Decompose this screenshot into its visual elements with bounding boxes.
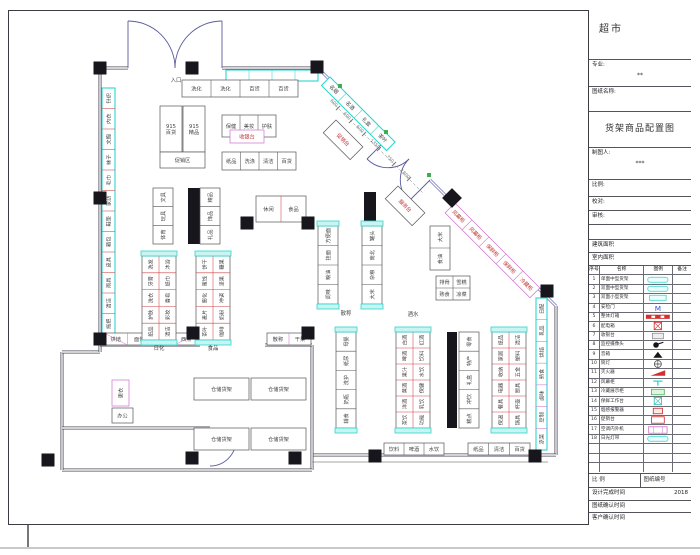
legend-name: 监控摄像头 — [600, 341, 645, 349]
major-value: ** — [592, 72, 688, 80]
legend-header-1: 名称 — [600, 266, 645, 274]
legend-sym — [644, 379, 673, 387]
legend-sym — [644, 425, 673, 433]
shelf-label: 精品 — [189, 128, 199, 136]
shelf-label: 洗衣 — [146, 293, 154, 303]
legend-row: 6配电箱 — [589, 322, 691, 331]
legend-sym — [644, 369, 673, 377]
legend-symbol-xbox-cyan — [645, 397, 671, 405]
shelf-label: 百货 — [282, 157, 292, 165]
black-strip — [364, 192, 376, 222]
scale-row: 比例: — [589, 180, 691, 197]
legend-no: 2 — [589, 285, 600, 293]
shelf-label: 饰品 — [206, 211, 214, 221]
plan-text: 散称 — [341, 309, 352, 317]
shelf-run: 排骨雪糕熟食凉菜 — [436, 276, 470, 300]
shelf-label: 洗护 — [342, 375, 350, 385]
footer-row1: 比 例 图纸编号 — [589, 474, 691, 488]
column — [529, 450, 542, 463]
legend-no: 3 — [589, 294, 600, 302]
legend-note — [673, 341, 691, 349]
shelf-label: 茶饮 — [400, 414, 408, 425]
legend-row: 4安检门M — [589, 304, 691, 313]
legend-row — [589, 444, 691, 453]
shelf-label: 收纳 — [496, 367, 504, 377]
shelf-run: 饼干糖果蜜饯坚果膨化冲调麦片奶粉茶叶咖啡 — [195, 251, 231, 345]
column — [289, 452, 302, 465]
legend-symbol-rect-red-sm — [645, 407, 671, 415]
shelf-label: 护肤 — [146, 309, 154, 320]
shelf-run: 915精品 — [183, 106, 205, 152]
column — [186, 62, 199, 75]
shelf-label: 电器 — [496, 382, 504, 393]
shelf-label: 纸尿 — [342, 356, 350, 366]
shelf-run: 母婴纸尿洗护奶瓶辅食 — [335, 327, 357, 433]
legend-no: 5 — [589, 313, 600, 321]
legend-no — [589, 444, 600, 452]
shelf-label: 百货 — [249, 84, 259, 92]
shelf-label: 凉菜 — [537, 434, 545, 444]
legend-note — [673, 463, 691, 472]
legend-no: 9 — [589, 350, 600, 358]
legend-note — [673, 285, 691, 293]
legend-row: 3双面小型货架 — [589, 294, 691, 303]
legend-header-0: 序号 — [589, 266, 600, 274]
drafter-label: 制图人: — [592, 150, 610, 156]
legend-no: 4 — [589, 304, 600, 312]
shelf-label: 仓储货架 — [211, 385, 232, 393]
drawing-confirm-label: 图纸确认时间 — [592, 503, 625, 509]
legend-sym — [644, 435, 673, 443]
legend-symbol-tri-black — [645, 350, 671, 358]
shelf-label: 红酒 — [417, 335, 425, 345]
shelf-label: 文具 — [159, 192, 167, 202]
shelf-label: 休闲 — [263, 205, 273, 213]
shelf-label: 纸品 — [473, 445, 483, 453]
shelf-label: 毛巾 — [104, 175, 112, 185]
shelf-label: 白酒 — [400, 335, 408, 345]
door-marker — [384, 130, 388, 134]
shelf-label: 母婴 — [343, 336, 350, 346]
legend-row: 13冷藏展示柜 — [589, 388, 691, 397]
shelf-label: 杂粮 — [368, 270, 376, 280]
shelf-run: 精品饰品礼品 — [200, 188, 220, 244]
shelf-label: 鞋垫 — [104, 215, 112, 226]
shelf-label: 美妆 — [244, 122, 254, 130]
drawing-name-label: 图纸名称: — [592, 89, 616, 95]
shelf-run: 915百货 — [160, 106, 182, 152]
shelf-label: 牙膏 — [146, 276, 154, 286]
legend-sym: M — [644, 304, 673, 312]
legend-symbol-bar-red — [645, 313, 671, 321]
drafter-value: *** — [592, 160, 688, 168]
column — [541, 285, 554, 298]
shelf-label: 清洁 — [263, 157, 273, 165]
legend-symbol-rect-red — [645, 416, 671, 424]
shelf-label: 洋酒 — [400, 399, 408, 409]
shelf-label: 文胸 — [104, 134, 112, 144]
shelf-label: 保健 — [226, 122, 236, 130]
shelf-label: 糖果 — [217, 259, 225, 269]
shelf-label: 家居 — [496, 351, 504, 361]
legend-symbol-flag-red — [645, 369, 671, 377]
legend-symbol-pill-cyan — [645, 435, 671, 443]
shelf-label: 雨具 — [105, 278, 112, 288]
shelf-label: 乳品 — [537, 325, 545, 335]
shelf-run: 仓储货架 — [251, 428, 306, 450]
shelf-label: 糕点 — [465, 413, 473, 423]
shelf-run: 纸品洗涤清洁百货 — [222, 152, 296, 170]
shelf-label: 礼品 — [206, 229, 214, 239]
shelf-run: 洗发沐浴牙膏纸巾洗衣香皂护肤彩妆纸品清洁 — [141, 251, 177, 345]
legend-no: 11 — [589, 369, 600, 377]
shelf-label: 礼盒 — [465, 374, 473, 385]
legend-sym — [644, 322, 673, 330]
shelf-label: 啤酒 — [409, 445, 419, 453]
shelf-label: 洗化 — [220, 84, 230, 92]
shelf-run: 洗化洗化百货百货 — [182, 80, 298, 97]
shelf-label: 百货 — [514, 445, 524, 453]
shelf-run: 文具玩具体育 — [153, 188, 173, 244]
design-time-label: 设计完成时间 — [592, 490, 625, 498]
footer-row2: 设计完成时间 2018 — [589, 488, 691, 501]
legend-sym — [644, 313, 673, 321]
shelf-label: 纸巾 — [163, 276, 171, 286]
shelf-run: 仓储货架 — [251, 378, 306, 400]
legend-row: 1单面中型货架 — [589, 275, 691, 284]
legend-note — [673, 350, 691, 358]
legend-note — [673, 388, 691, 396]
shelf-label: 麦片 — [200, 310, 208, 320]
legend-name: 灭火器 — [600, 369, 645, 377]
black-strip — [188, 188, 200, 244]
legend-name: 双面中型货架 — [600, 285, 645, 293]
legend-name: 音箱 — [600, 350, 645, 358]
column — [241, 217, 254, 230]
shelf-label: 调味 — [324, 289, 332, 299]
legend-sym — [644, 360, 673, 368]
legend-row: 9音箱 — [589, 350, 691, 359]
legend-note — [673, 313, 691, 321]
legend-row: 18日光灯带 — [589, 435, 691, 444]
shelf-label: 功能 — [417, 415, 425, 425]
shelf-label: 百货 — [278, 84, 288, 92]
shelf-label: 五金 — [513, 366, 521, 377]
drawing-sheet: 洗化洗化百货百货针织内衣文胸袜子毛巾家纺鞋垫箱包皮具雨具清洁拖把日配乳品烘焙熟食… — [0, 0, 700, 555]
legend-name — [600, 454, 645, 462]
legend-row: 15烟感报警器 — [589, 407, 691, 416]
legend-note — [673, 454, 691, 462]
shelf-run: 零食特产礼盒冲饮糕点 — [459, 332, 479, 428]
shelf-label: 餐具 — [496, 399, 504, 409]
shelf-label: 大米 — [368, 288, 376, 299]
shelf-label: 散称 — [273, 335, 283, 343]
legend-no — [589, 454, 600, 462]
legend-no — [589, 463, 600, 472]
shelf-label: 卤味 — [537, 391, 545, 401]
legend-no: 17 — [589, 425, 600, 433]
legend-note — [673, 294, 691, 302]
legend-symbol-cam-black — [645, 341, 671, 349]
legend-note — [673, 397, 691, 405]
legend-no: 7 — [589, 332, 600, 340]
legend-row — [589, 463, 691, 472]
shelf-label: 仓储货架 — [268, 435, 289, 443]
shelf-label: 保健 — [417, 383, 425, 393]
shelf-label: 水饮 — [429, 445, 440, 453]
audit-label: 审核: — [592, 213, 605, 219]
shelf-label: 沐浴 — [163, 258, 171, 269]
shelf-label: 日配 — [538, 303, 545, 314]
drawing-title: 货架商品配置图 — [589, 112, 691, 148]
shelf-label: 纸品 — [226, 157, 236, 165]
shelf-label: 食品 — [288, 205, 298, 213]
shelf-label: 仓储货架 — [211, 435, 232, 443]
shelf-run: 饮料啤酒水饮 — [384, 443, 444, 455]
shelf-label: 清洁 — [513, 335, 521, 345]
legend-name: 单面中型货架 — [600, 275, 645, 283]
plan-text: 食品 — [208, 344, 219, 352]
shelf-label: 黄酒 — [400, 383, 408, 393]
legend-note — [673, 322, 691, 330]
major-row: 专业: ** — [589, 60, 691, 87]
legend-row: 10筒灯 — [589, 360, 691, 369]
shelf-run: 促销区 — [160, 152, 205, 168]
legend-header-3: 备注 — [673, 266, 691, 274]
shelf-label: 粮油 — [324, 270, 332, 280]
legend-name: 整体灯箱 — [600, 313, 645, 321]
column — [94, 62, 107, 75]
shelf-label: 皮具 — [104, 257, 112, 267]
column — [311, 61, 324, 74]
drafter-row: 制图人: *** — [589, 148, 691, 180]
shelf-label: 冲饮 — [465, 393, 473, 404]
legend-row: 5整体灯箱 — [589, 313, 691, 322]
shelf-label: 熟食 — [439, 290, 450, 298]
shelf-run: 纸品清洁家居塑料收纳五金电器厨具餐具杯壶保温锅具 — [491, 327, 527, 433]
scale-label: 比例: — [592, 182, 605, 188]
legend-header-2: 图例 — [644, 266, 673, 274]
client-confirm-label: 客户确认时间 — [592, 515, 625, 521]
column — [42, 454, 55, 467]
legend-row: 12风幕柜 — [589, 379, 691, 388]
legend-note — [673, 407, 691, 415]
plan-text: 入口 — [171, 77, 182, 84]
legend-row — [589, 454, 691, 463]
legend-no: 16 — [589, 416, 600, 424]
shelf-label: 护肤 — [262, 122, 273, 130]
legend-note — [673, 444, 691, 452]
legend-row: 8监控摄像头 — [589, 341, 691, 350]
legend-sym — [644, 294, 673, 302]
legend-name: 日光灯带 — [600, 435, 645, 443]
shelf-label: 拖把 — [104, 318, 112, 329]
shelf-label: 饮料 — [417, 351, 425, 361]
shelf-label: 针织 — [104, 93, 112, 103]
shelf-run: 白酒红酒啤酒饮料果汁水饮黄酒保健洋酒乳饮茶饮功能 — [395, 327, 431, 433]
shelf-run: 办公 — [112, 408, 133, 423]
column — [186, 452, 199, 465]
legend-name: 筒灯 — [600, 360, 645, 368]
check-row: 校对: — [589, 197, 691, 211]
shelf-label: 啤酒 — [400, 351, 408, 361]
shelf-label: 奶瓶 — [342, 394, 350, 404]
legend-name: 风幕柜 — [600, 379, 645, 387]
legend-row: 17空调内外机 — [589, 425, 691, 434]
area2-label: 室内面积 — [592, 255, 614, 261]
shelf-run: 休闲食品 — [256, 196, 306, 222]
legend-no: 15 — [589, 407, 600, 415]
legend-no: 13 — [589, 388, 600, 396]
door-marker — [427, 173, 431, 177]
shelf-label: 促销区 — [175, 156, 191, 164]
shelf-label: 清洁 — [163, 326, 171, 336]
footer-scale-label: 比 例 — [589, 474, 641, 487]
legend-sym — [644, 350, 673, 358]
shelf-label: 锅具 — [513, 415, 521, 425]
legend-symbol-xbox-red — [645, 322, 671, 330]
legend-name: 促销台 — [600, 416, 645, 424]
shelf-label: 烘焙 — [111, 335, 121, 343]
shelf-label: 零食 — [465, 336, 473, 347]
blank-row — [589, 225, 691, 240]
shelf-label: 食油 — [436, 254, 444, 264]
legend-row: 7收银台 — [589, 332, 691, 341]
sheet-bottom-tick — [27, 525, 29, 547]
plan-text: 酒水 — [408, 310, 419, 318]
shelf-label: 坚果 — [217, 276, 225, 286]
legend-sym — [644, 388, 673, 396]
shelf-label: 杯壶 — [513, 399, 521, 409]
shelf-label: 洗发 — [146, 259, 154, 269]
legend-note — [673, 425, 691, 433]
shelf-label: 洗化 — [191, 84, 201, 92]
shelf-run: 更衣 — [112, 380, 129, 406]
shelf-run: 仓储货架 — [194, 378, 249, 400]
shelf-label: 罐头 — [368, 231, 376, 241]
legend-symbol-none — [645, 454, 671, 462]
legend-sym — [644, 332, 673, 340]
svg-text:M: M — [655, 304, 661, 312]
legend-sym — [644, 341, 673, 349]
shelf-label: 咖啡 — [217, 326, 225, 336]
legend-sym — [644, 397, 673, 405]
shelf-label: 更衣 — [116, 388, 124, 398]
check-label: 校对: — [592, 199, 605, 205]
shelf-run: 罐头南北杂粮大米 — [361, 221, 383, 309]
legend-note — [673, 275, 691, 283]
legend-name: 空调内外机 — [600, 425, 645, 433]
legend-no: 18 — [589, 435, 600, 443]
legend-name: 冷藏展示柜 — [600, 388, 645, 396]
shelf-label: 饮料 — [389, 445, 399, 453]
shelf-run: 收银台 — [230, 130, 264, 143]
shelf-label: 膨化 — [200, 293, 208, 303]
shelf-label: 辅食 — [342, 412, 350, 423]
shelf-label: 雪糕 — [456, 278, 466, 286]
shelf-label: 保温 — [496, 415, 504, 425]
shelf-label: 茶叶 — [200, 326, 208, 336]
legend-symbol-rect-magenta — [645, 425, 671, 433]
legend-table: 序号名称图例备注1单面中型货架2双面中型货架3双面小型货架4安检门M5整体灯箱6… — [589, 266, 691, 474]
legend-no: 14 — [589, 397, 600, 405]
shelf-label: 内衣 — [104, 114, 112, 124]
legend-name: 安检门 — [600, 304, 645, 312]
legend-name — [600, 463, 645, 472]
column — [302, 217, 315, 230]
column — [94, 192, 107, 205]
legend-symbol-pill-cyan — [645, 285, 671, 293]
shelf-label: 清洁 — [494, 445, 504, 453]
shelf-label: 厨具 — [514, 383, 521, 393]
shelf-label: 精品 — [206, 192, 214, 202]
shelf-label: 烘焙 — [537, 347, 545, 357]
shelf-label: 彩妆 — [163, 310, 171, 320]
legend-name: 双面小型货架 — [600, 294, 645, 302]
column — [187, 327, 200, 340]
shelf-label: 果汁 — [400, 367, 408, 377]
legend-note — [673, 379, 691, 387]
shelf-label: 大米 — [436, 231, 444, 242]
shelf-label: 熟食 — [537, 368, 545, 379]
legend-no: 12 — [589, 379, 600, 387]
shelf-label: 香皂 — [163, 293, 171, 303]
shelf-label: 南北 — [368, 249, 376, 260]
legend-note — [673, 360, 691, 368]
drawing-name-row: 图纸名称: — [589, 87, 691, 112]
legend-no: 8 — [589, 341, 600, 349]
legend-name: 配电箱 — [600, 322, 645, 330]
area1-row: 建筑面积 — [589, 240, 691, 253]
diamond-column — [442, 188, 462, 208]
shelf-label: 仓储货架 — [268, 385, 289, 393]
shelf-run: 方便面挂面粮油调味 — [317, 221, 339, 309]
shelf-label: 纸品 — [496, 335, 504, 345]
legend-note — [673, 369, 691, 377]
shelf-label: 百货 — [166, 128, 176, 136]
shelf-label: 箱包 — [104, 237, 112, 247]
legend-symbol-none — [645, 463, 671, 472]
legend-symbol-pill-cyan — [645, 275, 671, 283]
black-strip — [447, 332, 457, 428]
shelf-label: 凉菜 — [456, 290, 466, 298]
legend-name — [600, 444, 645, 452]
shelf-label: 洗涤 — [245, 157, 255, 165]
shelf-run: 仓储货架 — [194, 428, 249, 450]
legend-row: 2双面中型货架 — [589, 285, 691, 294]
shelf-label: 冲调 — [217, 293, 225, 303]
legend-row: 14保鲜工作台 — [589, 397, 691, 406]
legend-sym — [644, 463, 673, 472]
shelf-run — [226, 70, 318, 81]
shelf-run: 服务台 — [385, 186, 425, 226]
shelf-run: 纸品清洁百货 — [468, 443, 530, 455]
footer-number-label: 图纸编号 — [641, 474, 692, 487]
legend-sym — [644, 416, 673, 424]
area2-row: 室内面积 — [589, 253, 691, 266]
legend-symbol-t-cyan — [645, 379, 671, 387]
legend-symbol-rect-cyan — [645, 294, 671, 302]
legend-sym — [644, 444, 673, 452]
column — [302, 327, 315, 340]
legend-sym — [644, 454, 673, 462]
door-marker — [338, 84, 342, 88]
column — [94, 333, 107, 346]
legend-row: 11灭火器 — [589, 369, 691, 378]
legend-note — [673, 416, 691, 424]
shelf-label: 豆制 — [537, 412, 545, 422]
shelf-label: 排骨 — [439, 278, 449, 286]
